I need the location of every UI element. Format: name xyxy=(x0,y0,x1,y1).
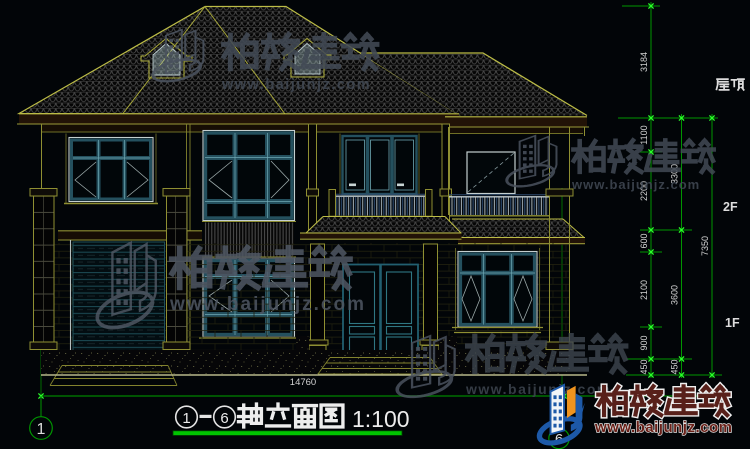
svg-text:3600: 3600 xyxy=(670,285,680,305)
svg-text:600: 600 xyxy=(639,233,649,248)
svg-text:1: 1 xyxy=(37,421,46,438)
svg-text:2F: 2F xyxy=(723,200,738,214)
svg-text:1100: 1100 xyxy=(639,125,649,144)
svg-text:900: 900 xyxy=(639,335,649,350)
svg-text:1F: 1F xyxy=(725,316,740,330)
svg-text:www.baijunjz.com: www.baijunjz.com xyxy=(594,419,732,436)
svg-text:www.baijunjz.com: www.baijunjz.com xyxy=(221,77,371,93)
svg-text:3184: 3184 xyxy=(639,52,649,72)
svg-text:450: 450 xyxy=(639,359,649,374)
svg-text:www.baijunjz.com: www.baijunjz.com xyxy=(465,381,611,397)
svg-text:14760: 14760 xyxy=(290,377,316,388)
svg-text:1: 1 xyxy=(182,410,190,427)
svg-text:6: 6 xyxy=(220,410,228,427)
svg-text:450: 450 xyxy=(670,359,680,374)
svg-text:2100: 2100 xyxy=(639,280,649,300)
svg-text:www.baijunjz.com: www.baijunjz.com xyxy=(571,177,700,192)
svg-text:1:100: 1:100 xyxy=(352,406,410,432)
svg-text:www.baijunjz.com: www.baijunjz.com xyxy=(169,294,366,315)
svg-text:7350: 7350 xyxy=(700,236,710,256)
